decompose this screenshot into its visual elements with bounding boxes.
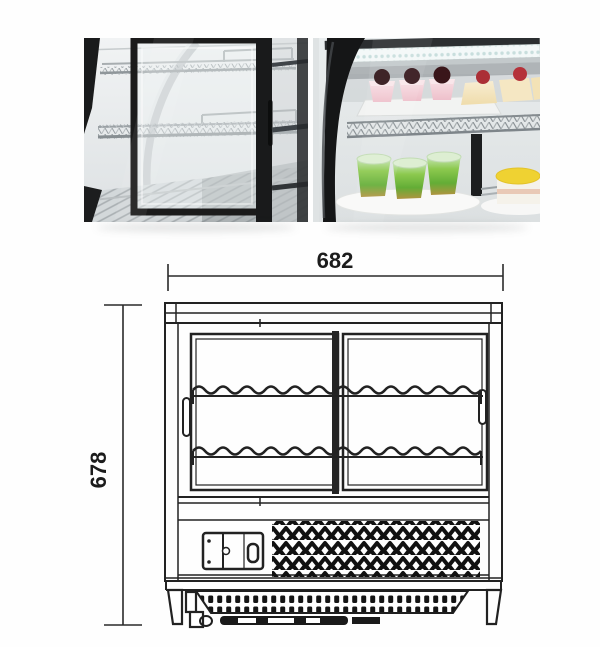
vent-bar-small [352,617,380,624]
dimension-drawing: 682 678 [0,0,600,647]
center-stile [332,331,339,494]
door-right [343,334,487,490]
condenser-grille [272,521,480,577]
product-sheet: 682 678 [0,0,600,647]
foot-right [487,590,501,624]
sliding-doors [183,331,487,494]
foot-left [168,590,182,624]
door-left [191,334,338,490]
electrical-box [203,533,263,569]
drain-step [186,592,196,612]
base-band [165,578,502,590]
vent-tray [196,591,468,626]
width-dimension-label: 682 [317,248,354,273]
door-handle-left [183,398,190,436]
height-dimension-label: 678 [86,452,111,489]
